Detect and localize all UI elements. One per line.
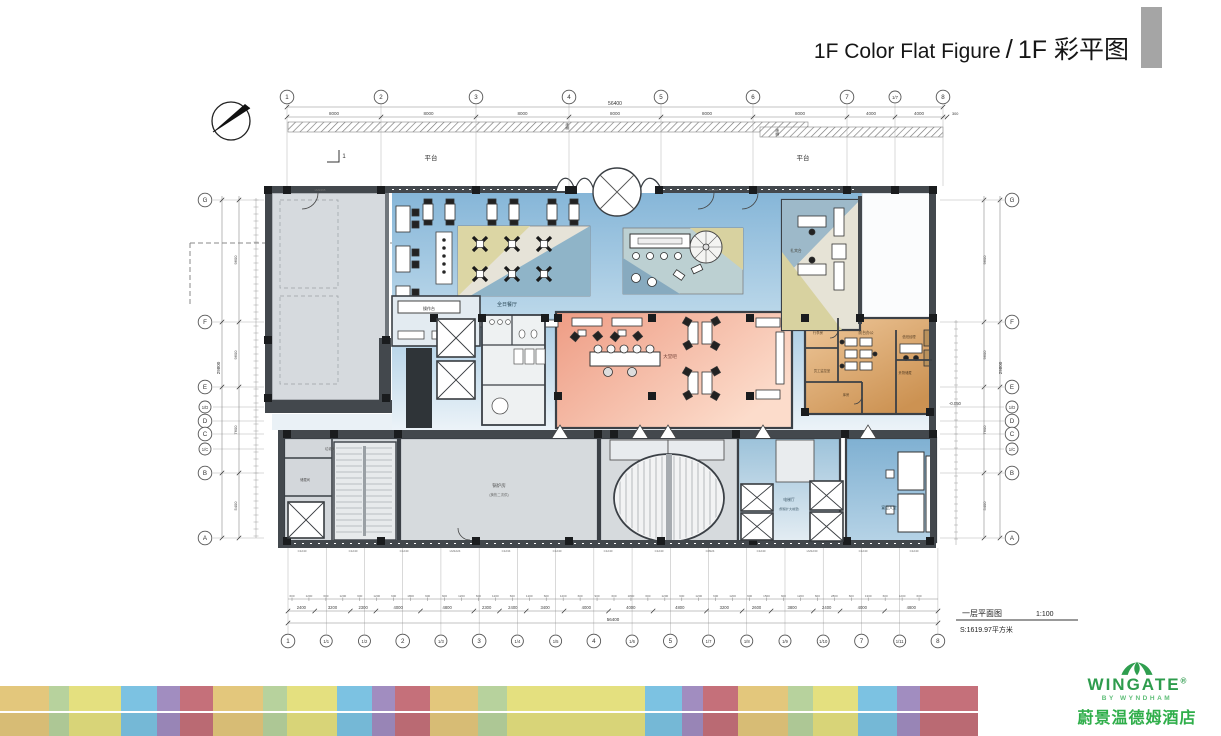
svg-text:3: 3 [477, 638, 481, 645]
label-storage: 储藏间 [300, 477, 310, 482]
svg-text:600: 600 [883, 594, 888, 598]
svg-text:1200: 1200 [339, 594, 346, 598]
svg-text:29800: 29800 [998, 361, 1003, 374]
room-lobby-bar [556, 312, 792, 428]
svg-text:1200: 1200 [306, 594, 313, 598]
label-boiler: 锅炉房 [492, 482, 506, 489]
svg-text:4800: 4800 [907, 605, 917, 610]
svg-text:B: B [203, 470, 207, 477]
svg-text:C1240: C1240 [655, 549, 664, 553]
svg-text:7600: 7600 [233, 425, 238, 435]
svg-text:3: 3 [474, 94, 478, 101]
svg-text:1/C: 1/C [1009, 447, 1016, 452]
svg-text:600: 600 [544, 594, 549, 598]
label-duty-manager: 值班经理 [902, 334, 916, 339]
label-canopy-2: 雨棚 [775, 129, 780, 137]
svg-text:4000: 4000 [626, 605, 636, 610]
svg-text:1/11: 1/11 [896, 639, 905, 644]
label-banquet-lobby: 宴会大堂 [881, 505, 896, 510]
svg-text:5400: 5400 [233, 501, 238, 511]
svg-text:D: D [203, 418, 208, 425]
svg-text:600: 600 [917, 594, 922, 598]
svg-text:4800: 4800 [442, 605, 452, 610]
svg-text:C1240: C1240 [298, 549, 307, 553]
svg-text:600: 600 [611, 594, 616, 598]
svg-text:4: 4 [592, 638, 596, 645]
svg-text:1200: 1200 [492, 594, 499, 598]
svg-text:C0924: C0924 [706, 549, 715, 553]
svg-text:3200: 3200 [328, 605, 338, 610]
svg-text:2600: 2600 [752, 605, 762, 610]
porch [862, 193, 933, 318]
svg-text:1200: 1200 [797, 594, 804, 598]
svg-text:600: 600 [747, 594, 752, 598]
svg-text:1200: 1200 [458, 594, 465, 598]
svg-text:1/7: 1/7 [706, 639, 712, 644]
label-section-1: 1 [342, 154, 346, 160]
svg-text:2300: 2300 [358, 605, 368, 610]
svg-text:1500: 1500 [763, 594, 770, 598]
svg-text:1200: 1200 [729, 594, 736, 598]
svg-text:3200: 3200 [720, 605, 730, 610]
svg-text:1/2: 1/2 [362, 639, 368, 644]
svg-text:56400: 56400 [608, 101, 622, 107]
svg-text:900: 900 [595, 594, 600, 598]
svg-text:4800: 4800 [675, 605, 685, 610]
svg-text:9600: 9600 [982, 350, 987, 360]
brand-logo: WINGATE® BY WYNDHAM 蔚景温德姆酒店 [1058, 661, 1216, 728]
label-all-day-dining: 全日餐厅 [497, 301, 517, 308]
svg-text:600: 600 [442, 594, 447, 598]
label-monitor-room: 员工监控室 [814, 368, 831, 373]
svg-text:600: 600 [510, 594, 515, 598]
svg-text:C1240: C1240 [604, 549, 613, 553]
svg-text:600: 600 [357, 594, 362, 598]
label-door-code-1: LM2465 [315, 188, 326, 192]
svg-text:G: G [203, 197, 208, 204]
strip-shade [0, 713, 978, 736]
svg-text:LM1230: LM1230 [807, 549, 818, 553]
svg-text:2400: 2400 [508, 605, 518, 610]
svg-text:1200: 1200 [661, 594, 668, 598]
svg-text:29800: 29800 [216, 361, 221, 374]
svg-text:6: 6 [751, 94, 755, 101]
svg-text:1200: 1200 [560, 594, 567, 598]
svg-text:F: F [203, 319, 207, 326]
caption-area: S:1619.97平方米 [960, 625, 1013, 634]
svg-text:8000: 8000 [702, 111, 713, 116]
svg-text:600: 600 [476, 594, 481, 598]
room-kitchen-shell [272, 193, 386, 400]
svg-text:5: 5 [659, 94, 663, 101]
svg-text:1/4: 1/4 [514, 639, 520, 644]
canopy-hatch [760, 127, 943, 137]
svg-text:2400: 2400 [297, 605, 307, 610]
svg-text:5: 5 [669, 638, 673, 645]
wingate-leaf-icon [1115, 661, 1159, 676]
label-canopy-1: 雨棚 [565, 123, 570, 131]
svg-text:600: 600 [679, 594, 684, 598]
svg-text:7: 7 [860, 638, 864, 645]
svg-text:600: 600 [815, 594, 820, 598]
svg-text:8: 8 [936, 638, 940, 645]
svg-text:1800: 1800 [407, 594, 414, 598]
label-elevator-hall: 电梯厅 [783, 497, 795, 502]
svg-text:600: 600 [289, 594, 294, 598]
label-trash: 垃圾房 [325, 446, 336, 451]
svg-text:E: E [1010, 384, 1014, 391]
logo-chinese-name: 蔚景温德姆酒店 [1058, 704, 1216, 728]
svg-text:600: 600 [645, 594, 650, 598]
svg-text:8000: 8000 [423, 111, 434, 116]
svg-text:4000: 4000 [582, 605, 592, 610]
caption-scale: 1:100 [1036, 611, 1054, 618]
logo-registered-mark: ® [1181, 676, 1187, 685]
spiral-feature [690, 231, 722, 263]
svg-text:C1240: C1240 [757, 549, 766, 553]
svg-text:F: F [1010, 319, 1014, 326]
svg-text:600: 600 [391, 594, 396, 598]
title-separator: / [1006, 34, 1013, 64]
svg-text:4000: 4000 [394, 605, 404, 610]
label-valuables: 贵物储藏 [898, 370, 912, 375]
svg-text:2: 2 [379, 94, 383, 101]
svg-text:C1240: C1240 [859, 549, 868, 553]
svg-text:3800: 3800 [788, 605, 798, 610]
svg-text:9600: 9600 [233, 255, 238, 265]
svg-text:1/5: 1/5 [553, 639, 559, 644]
logo-brand-text: WINGATE [1088, 675, 1181, 694]
label-luggage: 行李房 [813, 330, 824, 335]
section-marker [327, 150, 339, 162]
svg-text:1/D: 1/D [1009, 405, 1016, 410]
svg-text:1200: 1200 [526, 594, 533, 598]
svg-text:8000: 8000 [610, 111, 621, 116]
svg-text:2800: 2800 [831, 594, 838, 598]
svg-text:C: C [1010, 431, 1015, 438]
svg-text:1/3: 1/3 [438, 639, 444, 644]
svg-text:9600: 9600 [982, 255, 987, 265]
title-accent-bar [1141, 7, 1162, 68]
svg-text:G: G [1010, 197, 1015, 204]
svg-text:1: 1 [286, 638, 290, 645]
label-platform-1: 平台 [425, 153, 438, 162]
caption-name: 一层平面图 [962, 609, 1002, 618]
svg-text:4000: 4000 [914, 111, 925, 116]
svg-text:1200: 1200 [695, 594, 702, 598]
label-lobby-bar: 大堂吧 [663, 353, 677, 360]
label-elevator-hall-sub: (预留扩大前室) [779, 506, 800, 511]
svg-text:C1240: C1240 [349, 549, 358, 553]
floor-plan: 全日餐厅 操作台 大堂吧 礼宾台 行李房 前台办公 值班经理 贵物储藏 员工监控… [0, 0, 1221, 736]
logo-subtitle: BY WYNDHAM [1058, 695, 1216, 702]
svg-text:5400: 5400 [982, 501, 987, 511]
svg-text:600: 600 [425, 594, 430, 598]
svg-text:D: D [1010, 418, 1015, 425]
svg-text:600: 600 [323, 594, 328, 598]
svg-text:1200: 1200 [899, 594, 906, 598]
label-platform-2: 平台 [797, 153, 810, 162]
svg-text:E: E [203, 384, 207, 391]
svg-text:1/10: 1/10 [819, 639, 828, 644]
svg-text:C1234: C1234 [502, 549, 511, 553]
canopy-hatch [288, 122, 808, 132]
svg-text:9600: 9600 [233, 350, 238, 360]
svg-text:2: 2 [401, 638, 405, 645]
svg-text:1/8: 1/8 [744, 639, 750, 644]
svg-text:LM1224: LM1224 [450, 549, 461, 553]
accessible-wc [492, 398, 508, 414]
service-shaft [406, 348, 432, 428]
svg-text:300: 300 [952, 112, 958, 116]
svg-text:1: 1 [285, 94, 289, 101]
label-operation-counter: 操作台 [423, 305, 435, 311]
color-strip [0, 686, 978, 736]
svg-text:C1240: C1240 [553, 549, 562, 553]
svg-text:56400: 56400 [607, 617, 620, 622]
svg-text:8: 8 [941, 94, 945, 101]
svg-text:4000: 4000 [866, 111, 877, 116]
title-en: 1F Color Flat Figure [814, 40, 1001, 63]
svg-text:1/C: 1/C [202, 447, 209, 452]
page-title: 1F Color Flat Figure/1F 彩平图 [814, 30, 1129, 66]
svg-text:1/6: 1/6 [629, 639, 635, 644]
label-concierge: 礼宾台 [790, 248, 802, 253]
svg-text:600: 600 [781, 594, 786, 598]
label-boiler-sub: (换热二次供) [489, 492, 508, 497]
strip-divider-line [0, 711, 978, 713]
label-front-office: 前台办公 [858, 330, 873, 335]
svg-text:600: 600 [713, 594, 718, 598]
svg-text:C: C [203, 431, 208, 438]
svg-text:2400: 2400 [822, 605, 832, 610]
svg-text:7: 7 [845, 94, 849, 101]
plan-caption: 一层平面图 1:100 S:1619.97平方米 [956, 609, 1078, 634]
title-zh: 1F 彩平图 [1018, 36, 1129, 64]
svg-text:1/D: 1/D [202, 405, 209, 410]
svg-text:1200: 1200 [373, 594, 380, 598]
svg-text:4: 4 [567, 94, 571, 101]
svg-text:B: B [1010, 470, 1014, 477]
label-store: 库房 [843, 392, 850, 397]
svg-text:1/1: 1/1 [323, 639, 329, 644]
svg-text:1/7: 1/7 [892, 95, 898, 100]
svg-text:1800: 1800 [628, 594, 635, 598]
logo-brand: WINGATE® [1058, 676, 1216, 694]
svg-text:4000: 4000 [858, 605, 868, 610]
svg-text:C1240: C1240 [400, 549, 409, 553]
svg-text:3400: 3400 [540, 605, 550, 610]
svg-text:600: 600 [849, 594, 854, 598]
room-boiler [400, 438, 598, 542]
svg-text:1/9: 1/9 [782, 639, 788, 644]
svg-text:8000: 8000 [517, 111, 528, 116]
svg-text:C1240: C1240 [910, 549, 919, 553]
label-level: -0.050 [949, 401, 962, 406]
label-door-code-2: LM2465 [708, 188, 719, 192]
svg-text:2300: 2300 [482, 605, 492, 610]
svg-text:1300: 1300 [865, 594, 872, 598]
svg-text:600: 600 [578, 594, 583, 598]
svg-text:8000: 8000 [329, 111, 340, 116]
north-arrow-icon [212, 102, 250, 140]
svg-text:7600: 7600 [982, 425, 987, 435]
svg-text:8000: 8000 [795, 111, 806, 116]
